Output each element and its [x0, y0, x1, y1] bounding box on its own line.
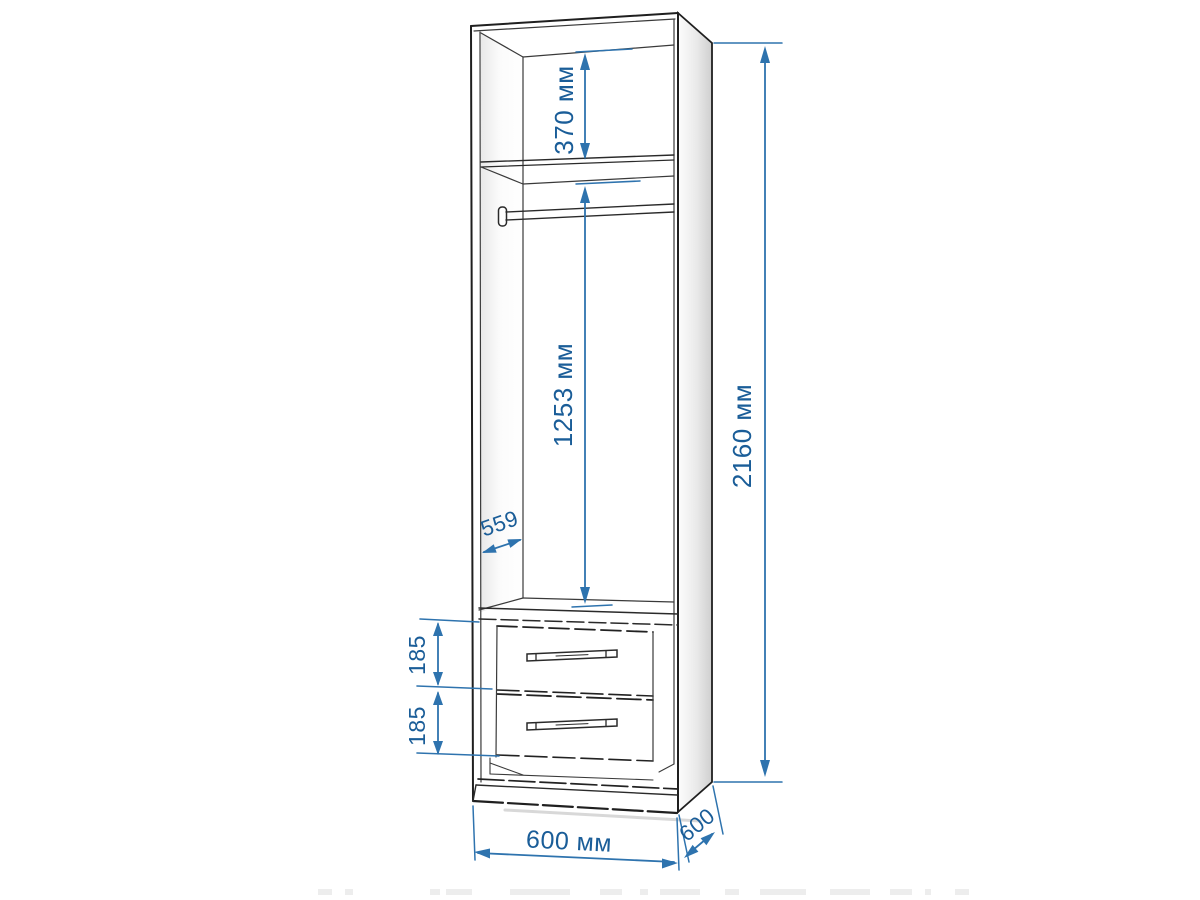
dim-185b-ext-bottom — [417, 753, 499, 756]
plinth-bottom-edge — [473, 801, 677, 813]
dim-2160-arrow-up — [760, 46, 770, 63]
rod-end-flange — [499, 207, 507, 226]
top-outer-edge — [471, 13, 678, 26]
dim-600w-arrow-right — [662, 859, 678, 869]
dim-hanging-space: 1253 мм — [548, 181, 640, 607]
dim-overall-width: 600 мм — [473, 806, 679, 870]
rod-bottom-edge — [506, 212, 674, 220]
dim-185a-arrow-down — [433, 672, 443, 686]
dim-lower-drawer: 185 — [404, 691, 499, 756]
panel-front-top-edge — [479, 608, 678, 614]
dim-2160-arrow-down — [760, 760, 770, 777]
dim-185a-arrow-up — [433, 622, 443, 636]
top-inner-edge — [474, 19, 675, 31]
left-outer-edge — [471, 26, 473, 800]
base-recess-top-edge — [490, 774, 653, 780]
dim-1253-ext-bottom — [572, 605, 612, 607]
left-inner-edge — [480, 32, 481, 782]
drawing-canvas: 370 мм 1253 мм 2160 мм 559 — [0, 0, 1200, 900]
plinth — [473, 785, 700, 821]
dim-1253-arrow-down — [580, 587, 590, 604]
dim-370-arrow-up — [580, 53, 590, 70]
drawer-stack-left-edge — [496, 626, 497, 757]
dim-2160-label: 2160 мм — [727, 384, 757, 488]
dim-600w-arrow-left — [474, 849, 490, 859]
drawer-1-top-edge — [497, 626, 653, 632]
right-side-panel — [678, 13, 712, 812]
dim-600d-ext-right — [713, 786, 723, 834]
drawer-right-recess-diagonal — [659, 764, 674, 772]
base-opening — [478, 758, 678, 789]
drawer-2-bottom-edge — [497, 755, 653, 761]
cabinet — [471, 13, 712, 821]
dim-185a-ext-top — [420, 619, 479, 622]
dim-1253-label: 1253 мм — [548, 343, 578, 447]
bottom-front-edge — [478, 779, 678, 789]
dim-overall-height: 2160 мм — [714, 43, 782, 782]
dim-370-ext-top — [576, 49, 632, 52]
drawer-unit-top-panel — [479, 598, 678, 625]
dim-upper-compartment: 370 мм — [549, 49, 632, 160]
plinth-top-edge — [476, 785, 677, 795]
panel-back-edge — [523, 598, 674, 602]
base-left-diagonal — [490, 763, 523, 775]
dimensions: 370 мм 1253 мм 2160 мм 559 — [404, 43, 782, 870]
watermark-remnant — [318, 889, 969, 895]
rod-top-edge — [506, 204, 674, 212]
dim-185b-label: 185 — [404, 706, 430, 746]
drawer-2 — [497, 694, 653, 761]
wardrobe-dimension-drawing: 370 мм 1253 мм 2160 мм 559 — [0, 0, 1200, 900]
dim-600w-label: 600 мм — [525, 825, 612, 857]
panel-front-bottom-edge — [479, 619, 678, 625]
dim-1253-ext-top — [576, 181, 640, 184]
dim-370-label: 370 мм — [549, 65, 579, 154]
dim-185b-arrow-up — [433, 691, 443, 705]
hanging-rod — [499, 204, 675, 226]
dim-upper-drawer: 185 — [404, 619, 492, 689]
dim-185a-label: 185 — [404, 635, 430, 675]
dim-1253-arrow-up — [580, 186, 590, 203]
drawer-1 — [497, 626, 653, 696]
